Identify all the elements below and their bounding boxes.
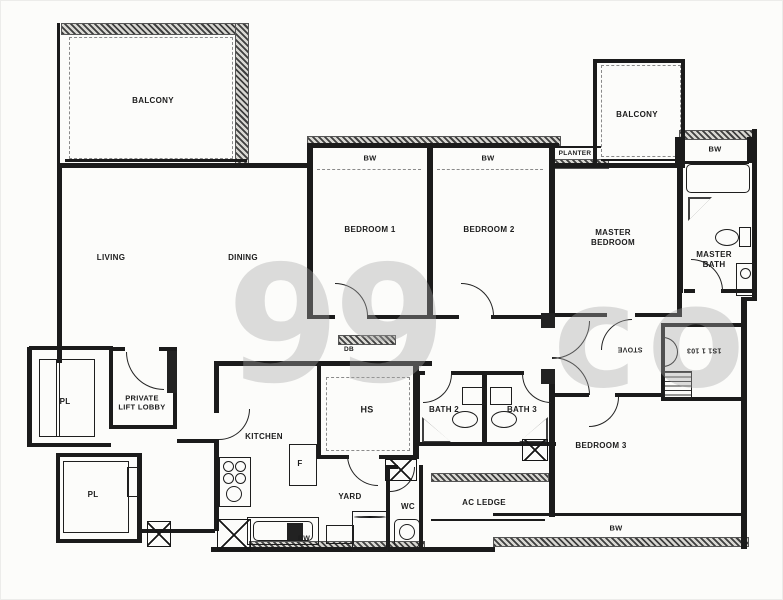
- door-swing-arc-icon: [589, 397, 619, 427]
- floor-plan: 99 co BALCONY BALCONY LIVING DINING BEDR…: [0, 0, 783, 600]
- stove-burners-icon: [223, 473, 234, 484]
- room-label-bedroom3: BEDROOM 3: [575, 441, 626, 451]
- wall-pier: [541, 369, 555, 384]
- wash-basin-icon: [663, 337, 678, 367]
- wall-segment: [549, 384, 555, 517]
- wall-segment: [416, 371, 420, 446]
- wall-segment: [549, 145, 555, 325]
- bay-window-hatch-icon: [338, 335, 396, 345]
- fridge-label: F: [297, 459, 302, 469]
- stove-burners-icon: [235, 461, 246, 472]
- door-swing-arc-icon: [552, 357, 590, 395]
- adjacent-stove-label: STOVE: [617, 344, 642, 353]
- wall-segment: [433, 315, 459, 319]
- room-label-bath2: BATH 2: [429, 405, 459, 415]
- wall-segment: [741, 301, 747, 549]
- wall-segment: [57, 23, 60, 163]
- ac-riser-xbox-icon: [217, 519, 251, 551]
- door-swing-arc-icon: [390, 467, 415, 492]
- wall-segment: [677, 161, 683, 293]
- room-label-living: LIVING: [97, 253, 125, 263]
- wall-segment: [27, 347, 32, 447]
- stove-burners-icon: [223, 461, 234, 472]
- wall-segment: [307, 143, 313, 319]
- dashed-line: [317, 169, 421, 170]
- room-label-master-bedroom: MASTER BEDROOM: [584, 228, 642, 248]
- wall-segment: [615, 393, 663, 397]
- wall-segment: [57, 163, 62, 363]
- door-swing-arc-icon: [347, 455, 378, 486]
- fixture-outline: [326, 525, 354, 544]
- bay-window-hatch-icon: [61, 23, 249, 35]
- fixture-outline: [127, 467, 139, 497]
- fixture-outline: [739, 227, 751, 247]
- db-label: DB: [344, 346, 354, 354]
- ac-riser-xbox-icon: [147, 521, 171, 547]
- room-label-planter: PLANTER: [559, 150, 592, 158]
- wash-basin-icon: [740, 268, 751, 279]
- bay-window-hatch-icon: [493, 537, 749, 547]
- wash-basin-icon: [399, 524, 415, 540]
- wall-pier: [541, 313, 555, 328]
- bathtub-icon: [686, 164, 750, 193]
- wall-segment: [31, 443, 111, 447]
- bay-window-label-kitchen: BW: [298, 536, 310, 545]
- wall-segment: [317, 363, 321, 459]
- wall-segment: [367, 315, 429, 319]
- washing-machine-icon: [354, 516, 386, 518]
- wall-segment: [601, 159, 677, 161]
- door-swing-arc-icon: [423, 374, 452, 403]
- wall-segment: [56, 453, 141, 457]
- room-label-wc: WC: [401, 502, 415, 512]
- room-label-private-lift-lobby: PRIVATE LIFT LOBBY: [117, 394, 167, 413]
- stove-burners-icon: [235, 473, 246, 484]
- bay-window-label-bedroom2: BW: [481, 153, 494, 162]
- room-label-ac-ledge: AC LEDGE: [462, 498, 506, 508]
- toilet-icon: [715, 229, 739, 246]
- bay-window-label-bedroom1: BW: [363, 153, 376, 162]
- wall-segment: [109, 347, 113, 429]
- wall-segment: [555, 313, 607, 317]
- wall-segment: [427, 145, 433, 319]
- wall-segment: [214, 361, 432, 366]
- door-swing-arc-icon: [126, 352, 164, 390]
- wall-segment: [29, 346, 113, 350]
- fixture-outline: [289, 444, 317, 486]
- room-label-balcony-tr: BALCONY: [616, 110, 658, 120]
- ac-riser-xbox-icon: [522, 439, 548, 461]
- fixture-outline: [462, 387, 486, 405]
- bay-window-hatch-icon: [679, 130, 755, 140]
- wall-segment: [56, 539, 142, 543]
- dashed-line: [437, 169, 543, 170]
- wall-segment: [431, 519, 545, 521]
- room-label-pl-upper: PL: [60, 397, 71, 407]
- wall-segment: [677, 291, 682, 317]
- wall-segment: [593, 59, 597, 163]
- wall-pier: [167, 351, 177, 393]
- bay-window-label-master: BW: [708, 144, 721, 153]
- room-label-dining: DINING: [228, 253, 258, 263]
- room-label-bedroom1: BEDROOM 1: [344, 225, 395, 235]
- wall-segment: [553, 163, 685, 168]
- adjacent-store-number-label: 1S1 1 103: [687, 345, 722, 354]
- wall-segment: [482, 371, 487, 446]
- bay-window-hatch-icon: [431, 473, 549, 482]
- wall-segment: [493, 513, 741, 516]
- room-label-balcony-tl: BALCONY: [132, 96, 174, 106]
- wall-segment: [57, 163, 312, 168]
- room-label-master-bath: MASTER BATH: [691, 250, 737, 270]
- room-label-yard: YARD: [338, 492, 361, 502]
- wall-segment: [317, 455, 349, 459]
- wall-segment: [109, 425, 177, 429]
- wall-segment: [661, 323, 745, 327]
- shower-screen-inner: [690, 199, 710, 219]
- duct-hatch-icon: [664, 371, 692, 399]
- wall-segment: [56, 453, 60, 543]
- room-label-hs: HS: [360, 404, 373, 415]
- room-label-bedroom2: BEDROOM 2: [463, 225, 514, 235]
- fixture-outline: [490, 387, 512, 405]
- door-swing-arc-icon: [552, 321, 590, 359]
- room-label-kitchen: KITCHEN: [245, 432, 283, 442]
- wall-segment: [593, 59, 685, 63]
- room-label-pl-lower: PL: [88, 490, 99, 500]
- wash-basin-icon: [226, 486, 242, 502]
- wall-segment: [177, 439, 217, 443]
- door-swing-arc-icon: [461, 283, 494, 316]
- wall-segment: [635, 313, 677, 317]
- wall-segment: [307, 315, 335, 319]
- wall-segment: [451, 371, 524, 375]
- bay-window-label-bedroom3: BW: [609, 523, 622, 532]
- wall-segment: [675, 137, 685, 163]
- wall-segment: [65, 159, 247, 162]
- room-label-bath3: BATH 3: [507, 405, 537, 415]
- bay-window-hatch-icon: [235, 23, 249, 167]
- door-swing-arc-icon: [335, 283, 368, 316]
- wall-segment: [307, 143, 559, 148]
- wall-segment: [214, 361, 219, 413]
